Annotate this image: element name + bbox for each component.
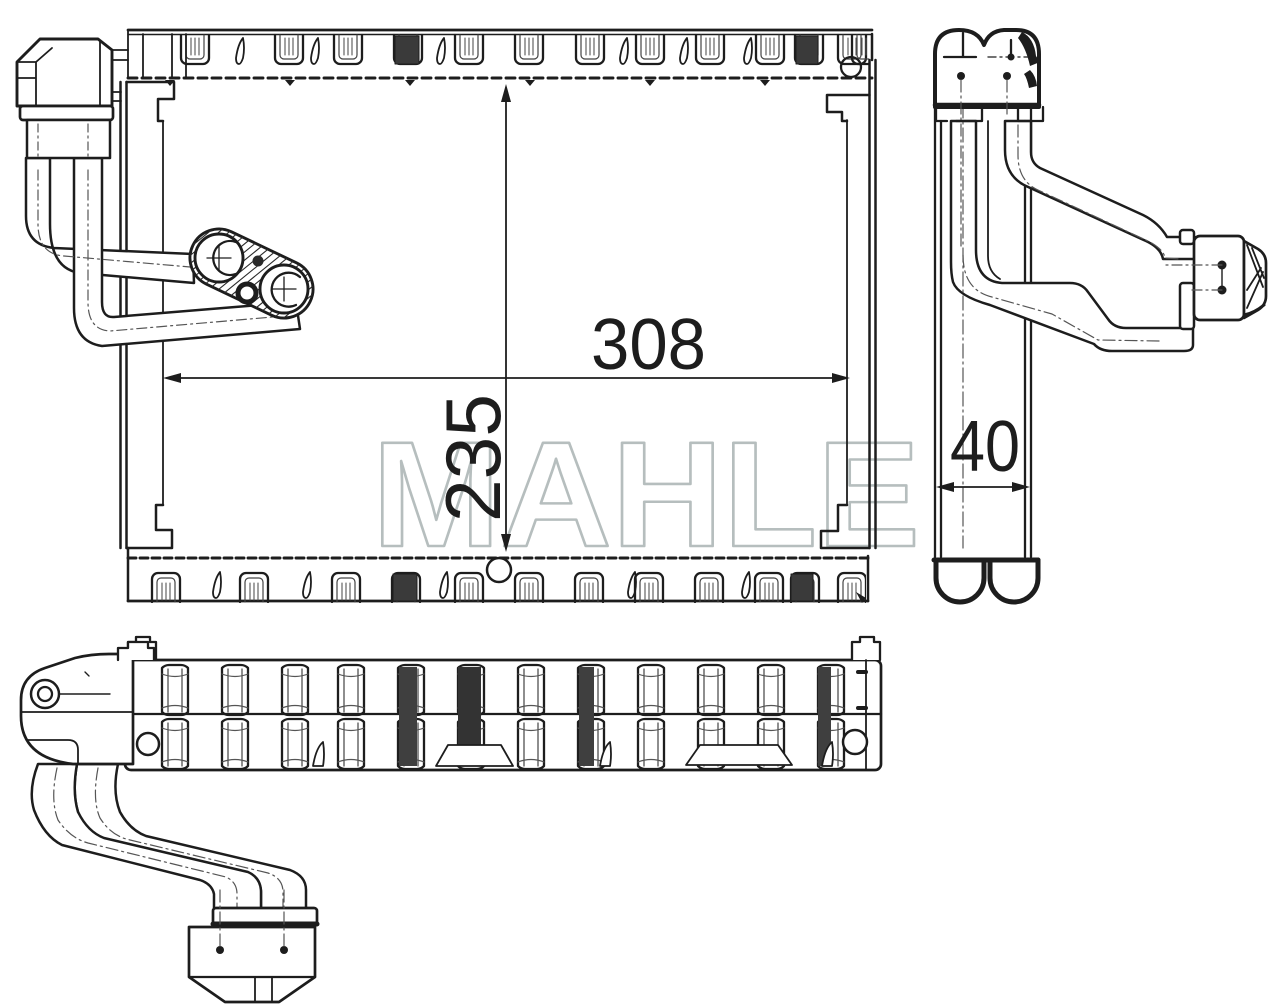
svg-text:235: 235 — [429, 394, 517, 522]
svg-text:40: 40 — [950, 407, 1020, 487]
svg-text:308: 308 — [591, 305, 706, 385]
